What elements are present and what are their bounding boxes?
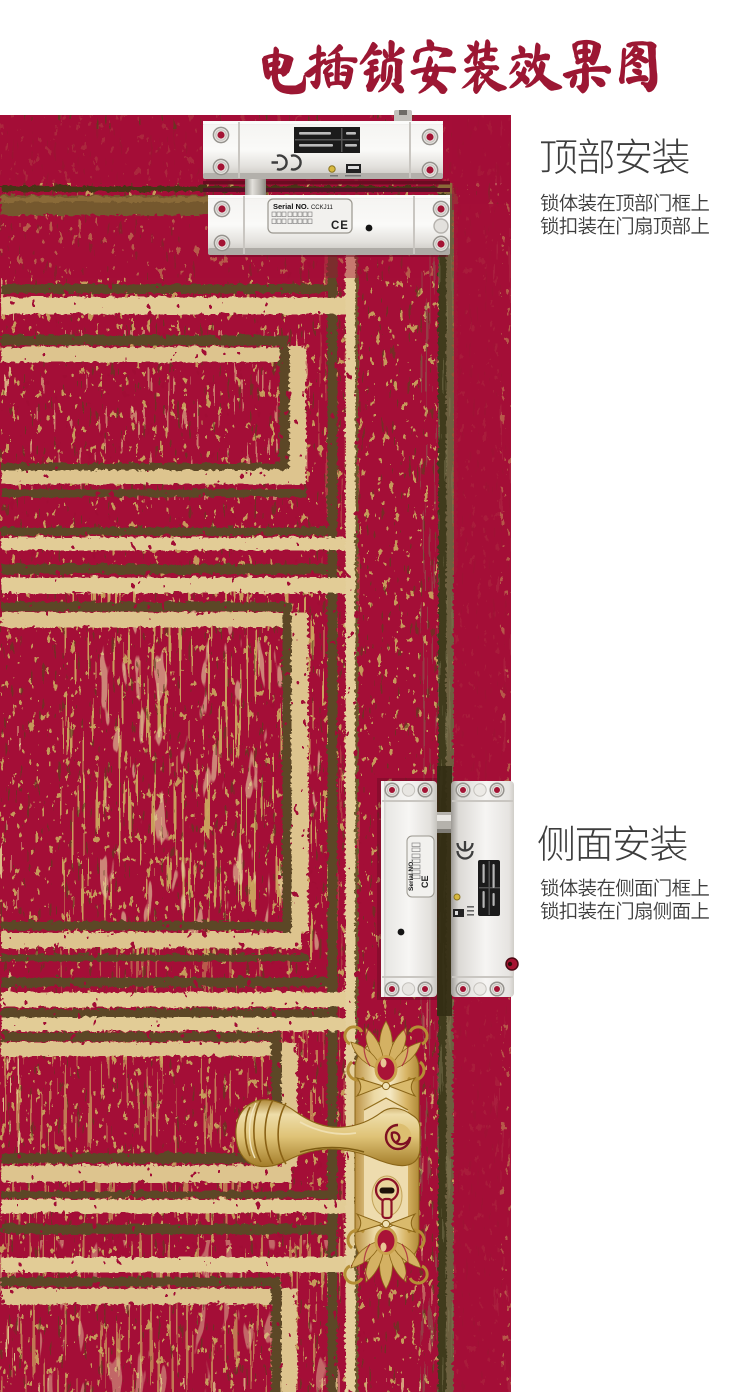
svg-text:CE: CE — [420, 875, 430, 888]
svg-text:Serial NO.: Serial NO. — [408, 860, 415, 891]
svg-text:CE: CE — [331, 220, 349, 232]
